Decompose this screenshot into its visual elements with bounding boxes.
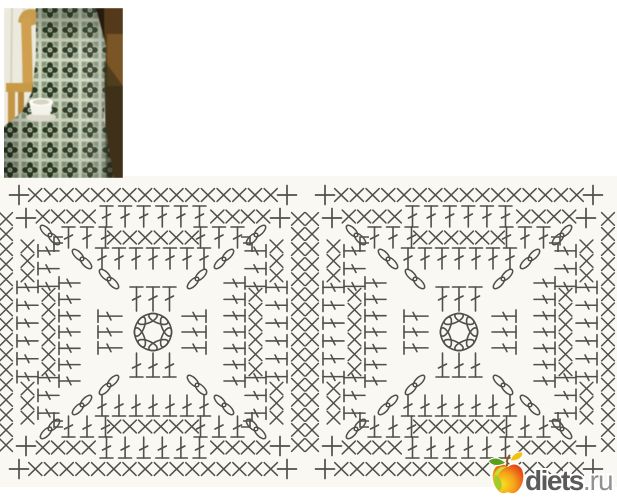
svg-text:diets.ru: diets.ru	[525, 465, 613, 496]
